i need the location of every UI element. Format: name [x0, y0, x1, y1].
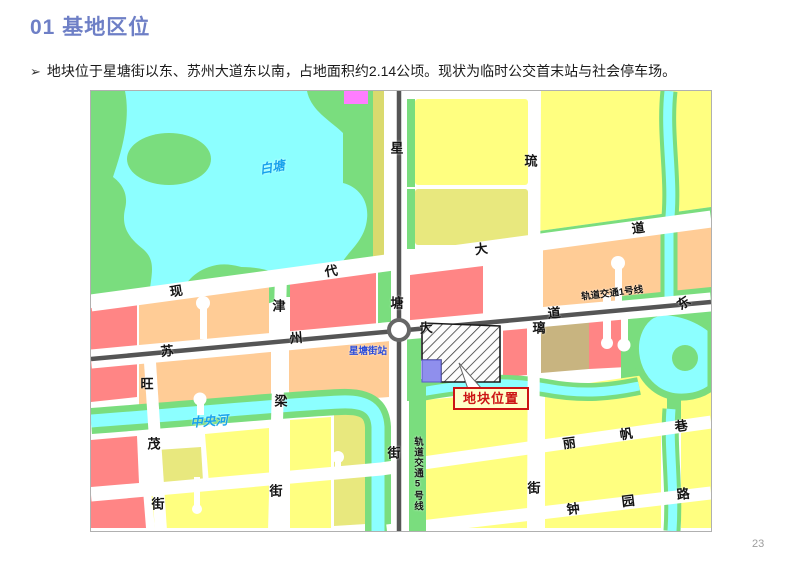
road-label: 街: [269, 481, 282, 500]
location-map: 现 代 大 道 苏 州 大 道 东 星 塘 街 津 梁 街 琉 璃 街 旺 茂 …: [90, 90, 712, 532]
road-label: 州: [289, 327, 304, 347]
intro-bullet: ➢地块位于星塘街以东、苏州大道东以南，占地面积约2.14公顷。现状为临时公交首末…: [30, 61, 780, 81]
road-label: 丽: [561, 432, 577, 453]
bullet-text: 地块位于星塘街以东、苏州大道东以南，占地面积约2.14公顷。现状为临时公交首末站…: [47, 63, 676, 79]
metro-line5-label: 轨道交通5号线: [410, 437, 424, 512]
page-number: 23: [752, 538, 764, 550]
bullet-arrow-icon: ➢: [30, 64, 41, 79]
river-label: 中央河: [190, 409, 229, 431]
olive-parcel: [415, 189, 528, 245]
olive-strip: [373, 91, 384, 263]
magenta-parcel: [344, 91, 368, 104]
lake-island: [127, 133, 211, 185]
site-purple-parcel: [422, 360, 441, 382]
road-label: 街: [151, 494, 164, 513]
yellow-parcel: [539, 91, 711, 231]
road-label: 钟: [565, 498, 580, 518]
road-label: 路: [675, 483, 690, 503]
site-location-callout: 地块位置: [453, 387, 529, 410]
road-label: 道: [547, 302, 562, 322]
road-label: 津: [272, 296, 285, 315]
road-label: 旺: [140, 374, 153, 393]
road-label: 苏: [160, 340, 175, 360]
road-label: 梁: [274, 391, 287, 410]
xingtang-station-marker: [389, 320, 409, 340]
road-label: 星: [390, 138, 403, 157]
road-label: 茂: [147, 434, 160, 453]
road-label: 现: [168, 280, 184, 301]
page-title: 01 基地区位: [30, 11, 150, 41]
road-label: 大: [419, 317, 434, 337]
road-label: 巷: [673, 415, 689, 436]
road-label: 代: [323, 260, 339, 281]
road-label: 道: [630, 217, 646, 238]
road-label: 园: [620, 490, 635, 510]
road-label: 塘: [390, 293, 403, 312]
road-label: 璃: [532, 318, 545, 337]
road-label: 帆: [618, 423, 634, 444]
road-label: 街: [387, 443, 400, 462]
station-label: 星塘街站: [349, 343, 387, 357]
road-label: 大: [473, 238, 489, 259]
yellow-parcel: [415, 99, 528, 185]
road-label: 琉: [524, 151, 537, 170]
road-label: 街: [527, 478, 540, 497]
